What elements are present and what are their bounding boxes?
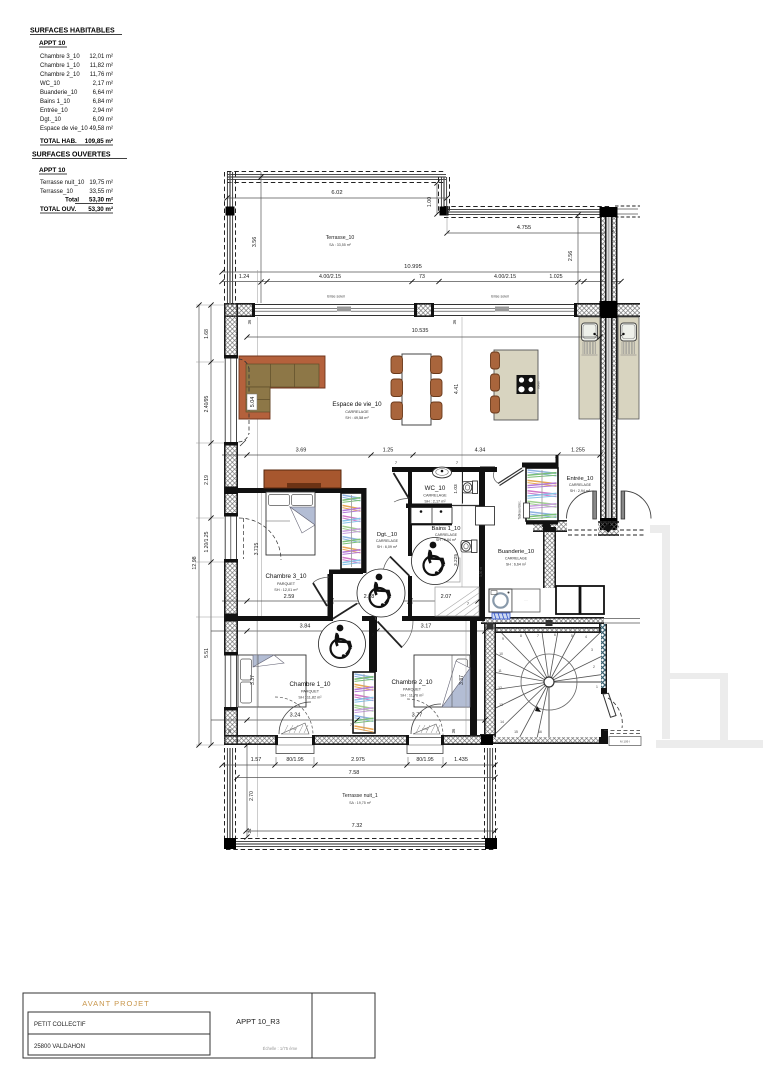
svg-text:Bains 1_10: Bains 1_10 <box>431 526 460 532</box>
svg-text:12: 12 <box>498 686 502 690</box>
svg-text:2.56: 2.56 <box>568 251 574 261</box>
svg-text:7.32: 7.32 <box>352 823 363 829</box>
svg-text:4.00/2.15: 4.00/2.15 <box>494 274 516 280</box>
svg-text:TOTAL OUV.: TOTAL OUV. <box>40 206 76 213</box>
svg-text:7.58: 7.58 <box>349 770 360 776</box>
svg-text:7: 7 <box>537 634 539 638</box>
svg-text:CARRELAGE: CARRELAGE <box>569 483 592 487</box>
svg-text:CARRELAGE: CARRELAGE <box>423 494 447 498</box>
svg-text:3.56: 3.56 <box>252 237 258 247</box>
svg-text:PARQUET: PARQUET <box>277 582 296 586</box>
svg-text:1,30 m: 1,30 m <box>479 567 483 577</box>
svg-text:SA : 19,75 m²: SA : 19,75 m² <box>349 801 372 805</box>
svg-text:AVANT PROJET: AVANT PROJET <box>82 999 149 1008</box>
svg-text:1.025: 1.025 <box>549 274 562 280</box>
svg-text:Dgt._10: Dgt._10 <box>40 117 62 123</box>
svg-text:19,75 m²: 19,75 m² <box>89 180 113 186</box>
svg-text:Entrée_10: Entrée_10 <box>40 108 68 114</box>
svg-text:Terrasse nuit_1: Terrasse nuit_1 <box>342 793 378 799</box>
svg-text:2.975: 2.975 <box>351 757 365 763</box>
svg-text:Espace de vie_10: Espace de vie_10 <box>40 126 88 132</box>
svg-text:4.755: 4.755 <box>517 225 532 231</box>
svg-text:24: 24 <box>247 828 252 834</box>
svg-text:6,09 m²: 6,09 m² <box>93 117 113 123</box>
svg-text:10.535: 10.535 <box>412 328 429 334</box>
svg-text:11,82 m²: 11,82 m² <box>90 63 113 69</box>
svg-text:Brise soleil: Brise soleil <box>491 295 509 299</box>
svg-text:3.37: 3.37 <box>459 675 465 685</box>
svg-text:CARRELAGE: CARRELAGE <box>376 539 399 543</box>
svg-text:WC_10: WC_10 <box>425 485 446 492</box>
svg-text:36: 36 <box>227 728 232 733</box>
svg-text:SURFACES HABITABLES: SURFACES HABITABLES <box>30 28 115 35</box>
svg-text:Terrasse_10: Terrasse_10 <box>40 189 74 195</box>
svg-text:CARRELAGE: CARRELAGE <box>505 557 528 561</box>
svg-text:3.37: 3.37 <box>250 675 256 685</box>
svg-text:1 VR: 1 VR <box>422 727 428 731</box>
svg-text:4.00/2.15: 4.00/2.15 <box>319 274 341 280</box>
svg-text:Espace de vie_10: Espace de vie_10 <box>332 401 382 408</box>
svg-text:8: 8 <box>520 634 522 638</box>
svg-text:SH : 11,76 m²: SH : 11,76 m² <box>400 694 424 698</box>
svg-text:Chambre 2_10: Chambre 2_10 <box>40 72 80 78</box>
svg-text:3.715: 3.715 <box>254 543 260 556</box>
svg-text:12,01 m²: 12,01 m² <box>89 54 113 60</box>
svg-text:3.77: 3.77 <box>412 713 423 719</box>
svg-text:12.98: 12.98 <box>192 556 198 569</box>
svg-text:Tableau Elec.: Tableau Elec. <box>518 500 522 519</box>
svg-text:5.51: 5.51 <box>204 648 210 658</box>
svg-text:SH : 6,84 m²: SH : 6,84 m² <box>436 538 457 542</box>
svg-text:5: 5 <box>571 634 573 638</box>
svg-text:TOTAL HAB.: TOTAL HAB. <box>40 138 77 145</box>
svg-text:13: 13 <box>499 703 503 707</box>
svg-text:SH : 6,64 m²: SH : 6,64 m² <box>506 563 527 567</box>
svg-text:1.24: 1.24 <box>239 274 249 280</box>
svg-text:SH : 49,58 m²: SH : 49,58 m² <box>345 416 369 420</box>
svg-text:60x60: 60x60 <box>537 381 541 389</box>
svg-text:4: 4 <box>585 635 587 639</box>
svg-text:2,94 m²: 2,94 m² <box>93 108 113 114</box>
svg-text:11,76 m²: 11,76 m² <box>90 72 113 78</box>
svg-text:36: 36 <box>451 728 456 733</box>
svg-text:Buanderie_10: Buanderie_10 <box>40 90 78 96</box>
svg-text:....: .... <box>524 598 528 602</box>
svg-text:PARQUET: PARQUET <box>301 690 320 694</box>
svg-text:80/1.95: 80/1.95 <box>416 757 433 763</box>
svg-text:1: 1 <box>596 685 598 689</box>
svg-text:Chambre 1_10: Chambre 1_10 <box>290 681 331 688</box>
svg-text:Entrée_10: Entrée_10 <box>567 476 594 482</box>
svg-text:Bains 1_10: Bains 1_10 <box>40 99 71 105</box>
svg-text:SH : 2,17 m²: SH : 2,17 m² <box>424 500 446 504</box>
svg-text:M 109 I: M 109 I <box>620 740 630 744</box>
svg-text:PARQUET: PARQUET <box>403 688 422 692</box>
svg-text:53,30 m²: 53,30 m² <box>89 197 113 204</box>
svg-text:14: 14 <box>500 720 504 724</box>
svg-text:2.40/95: 2.40/95 <box>204 395 210 412</box>
svg-text:CARRELAGE: CARRELAGE <box>345 410 369 414</box>
svg-text:53,30 m²: 53,30 m² <box>88 206 113 213</box>
svg-text:2.70: 2.70 <box>249 791 255 801</box>
svg-text:3.84: 3.84 <box>300 624 311 630</box>
svg-text:3: 3 <box>591 648 593 652</box>
svg-text:Dgt._10: Dgt._10 <box>377 532 397 538</box>
svg-text:36: 36 <box>247 319 252 324</box>
svg-text:6.02: 6.02 <box>331 190 342 196</box>
svg-text:1.03: 1.03 <box>453 484 459 494</box>
svg-text:PETIT COLLECTIF: PETIT COLLECTIF <box>34 1022 86 1028</box>
svg-text:6: 6 <box>554 633 556 637</box>
svg-text:SH : 6,09 m²: SH : 6,09 m² <box>377 545 398 549</box>
svg-text:2.07: 2.07 <box>441 594 452 600</box>
svg-text:1.25: 1.25 <box>383 448 394 454</box>
svg-text:2.28: 2.28 <box>364 594 375 600</box>
svg-text:Terrasse nuit_10: Terrasse nuit_10 <box>40 180 85 186</box>
svg-text:1.255: 1.255 <box>571 448 585 454</box>
svg-text:SURFACES OUVERTES: SURFACES OUVERTES <box>32 152 111 159</box>
svg-text:1.20/1.25: 1.20/1.25 <box>204 531 210 552</box>
svg-text:73: 73 <box>419 274 425 280</box>
svg-text:2.19: 2.19 <box>204 475 210 485</box>
svg-text:3.225: 3.225 <box>453 554 459 566</box>
svg-text:15: 15 <box>514 730 518 734</box>
svg-text:80/1.95: 80/1.95 <box>286 757 303 763</box>
svg-text:4.41: 4.41 <box>454 384 460 394</box>
svg-text:2.59: 2.59 <box>284 594 295 600</box>
svg-text:4.34: 4.34 <box>475 448 486 454</box>
svg-text:WC_10: WC_10 <box>40 81 61 87</box>
svg-text:10: 10 <box>499 652 503 656</box>
svg-text:16: 16 <box>538 730 542 734</box>
svg-text:Chambre 3_10: Chambre 3_10 <box>266 573 307 580</box>
svg-text:1.68: 1.68 <box>204 329 210 339</box>
svg-text:2: 2 <box>593 665 595 669</box>
svg-text:Chambre 2_10: Chambre 2_10 <box>392 679 433 686</box>
svg-text:3.17: 3.17 <box>421 624 432 630</box>
svg-text:APPT 10: APPT 10 <box>39 40 66 47</box>
svg-text:Brise soleil: Brise soleil <box>327 295 345 299</box>
svg-text:SH : 11,82 m²: SH : 11,82 m² <box>298 696 322 700</box>
svg-text:25800 VALDAHON: 25800 VALDAHON <box>34 1044 85 1050</box>
svg-text:6,64 m²: 6,64 m² <box>93 90 113 96</box>
svg-text:1.435: 1.435 <box>454 757 468 763</box>
svg-text:1.57: 1.57 <box>251 757 262 763</box>
svg-text:Chambre 3_10: Chambre 3_10 <box>40 54 80 60</box>
svg-text:6,84 m²: 6,84 m² <box>93 99 113 105</box>
svg-text:SH : 2,94 m²: SH : 2,94 m² <box>570 489 591 493</box>
svg-text:11: 11 <box>498 669 502 673</box>
svg-text:APPT 10: APPT 10 <box>39 167 66 174</box>
svg-text:109,85 m²: 109,85 m² <box>85 138 113 145</box>
svg-text:Échelle : 1/75 ème: Échelle : 1/75 ème <box>263 1046 298 1051</box>
svg-text:CARRELAGE: CARRELAGE <box>435 533 458 537</box>
svg-text:Chambre 1_10: Chambre 1_10 <box>40 63 80 69</box>
svg-text:Terrasse_10: Terrasse_10 <box>326 235 355 241</box>
svg-text:33,55 m²: 33,55 m² <box>89 189 113 195</box>
svg-text:1.00: 1.00 <box>427 197 433 207</box>
svg-text:5.04: 5.04 <box>250 397 256 408</box>
svg-text:2,17 m²: 2,17 m² <box>93 81 113 87</box>
svg-text:APPT 10_R3: APPT 10_R3 <box>236 1017 280 1026</box>
svg-text:9: 9 <box>502 637 504 641</box>
svg-text:3.69: 3.69 <box>296 448 307 454</box>
svg-text:10.995: 10.995 <box>404 264 422 270</box>
svg-text:36: 36 <box>452 319 457 324</box>
svg-text:49,58 m²: 49,58 m² <box>89 126 113 132</box>
svg-text:SH : 12,01 m²: SH : 12,01 m² <box>274 588 298 592</box>
svg-text:Buanderie_10: Buanderie_10 <box>498 549 534 555</box>
svg-text:3.24: 3.24 <box>290 713 301 719</box>
svg-text:Total: Total <box>65 198 79 204</box>
svg-text:SA : 33,55 m²: SA : 33,55 m² <box>329 243 352 247</box>
svg-text:1 VR: 1 VR <box>290 727 296 731</box>
